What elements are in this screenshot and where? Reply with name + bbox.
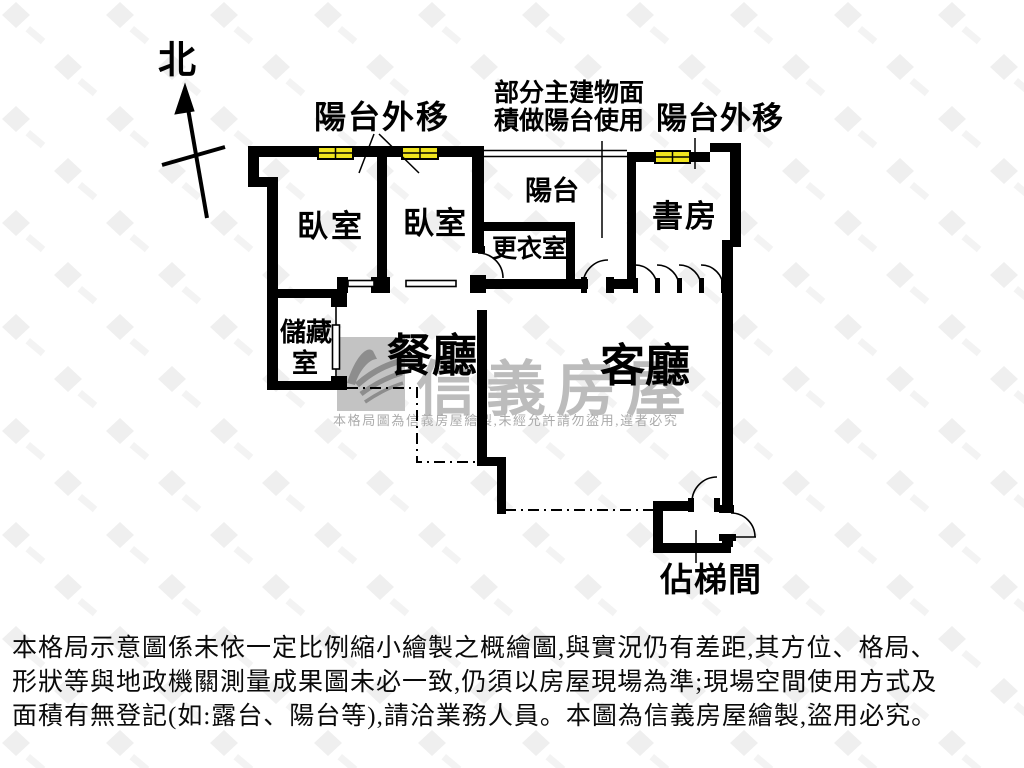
room-label-storage-line2: 室 <box>292 351 318 377</box>
door-arcs <box>478 253 756 537</box>
north-label: 北 <box>158 42 196 80</box>
bedroom-left-door-leaf <box>348 281 374 287</box>
disclaimer-line-1: 本格局示意圖係未依一定比例縮小繪製之概繪圖,與實況仍有差距,其方位、格局、 <box>12 632 1016 666</box>
room-label-dressing-room: 更衣室 <box>492 237 567 262</box>
entry-door-arc <box>731 513 755 537</box>
floor-plan-document: 信義房屋 本格局圖為信義房屋繪製,未經允許請勿盜用,違者必究 <box>0 0 1024 768</box>
room-label-stairwell: 佔梯間 <box>660 565 762 598</box>
door-posts <box>633 278 726 293</box>
study-folding-door-arc-2 <box>657 265 679 287</box>
balcony-shift-left-label: 陽台外移 <box>314 101 450 133</box>
area-note-line1: 部分主建物面 <box>494 81 644 106</box>
disclaimer-block: 本格局示意圖係未依一定比例縮小繪製之概繪圖,與實況仍有差距,其方位、格局、 形狀… <box>12 632 1016 734</box>
area-note-line2: 積做陽台使用 <box>494 109 644 134</box>
bedroom-mid-door-leaf <box>406 281 456 287</box>
window-icon-bedroom-mid <box>402 147 438 159</box>
room-label-study: 書房 <box>652 201 718 232</box>
room-label-bedroom-left: 臥室 <box>297 211 365 242</box>
window-icon-bedroom-left <box>318 147 353 159</box>
study-folding-door-arc-3 <box>679 265 701 287</box>
room-label-dining: 餐廳 <box>387 334 477 379</box>
balcony-edge-line <box>484 151 627 157</box>
balcony-shift-right-label: 陽台外移 <box>656 103 784 134</box>
storage-sliding-door-leaf <box>333 325 340 369</box>
room-label-balcony: 陽台 <box>525 178 579 205</box>
dining-area-dashdot <box>347 388 478 462</box>
study-folding-door-arc-4 <box>701 265 723 287</box>
stairwell-inner-door-arc <box>692 477 717 502</box>
disclaimer-line-3: 面積有無登記(如:露台、陽台等),請洽業務人員。本圖為信義房屋繪製,盜用必究。 <box>12 700 1016 734</box>
room-label-living: 客廳 <box>600 344 690 389</box>
room-label-storage-line1: 儲藏 <box>280 320 332 346</box>
north-arrow-icon <box>162 84 225 218</box>
study-folding-door-arc-1 <box>635 265 657 287</box>
disclaimer-line-2: 形狀等與地政機關測量成果圖未必一致,仍須以房屋現場為準;現場空間使用方式及 <box>12 666 1016 700</box>
window-icon-study <box>655 151 690 163</box>
room-label-bedroom-mid: 臥室 <box>403 208 467 239</box>
